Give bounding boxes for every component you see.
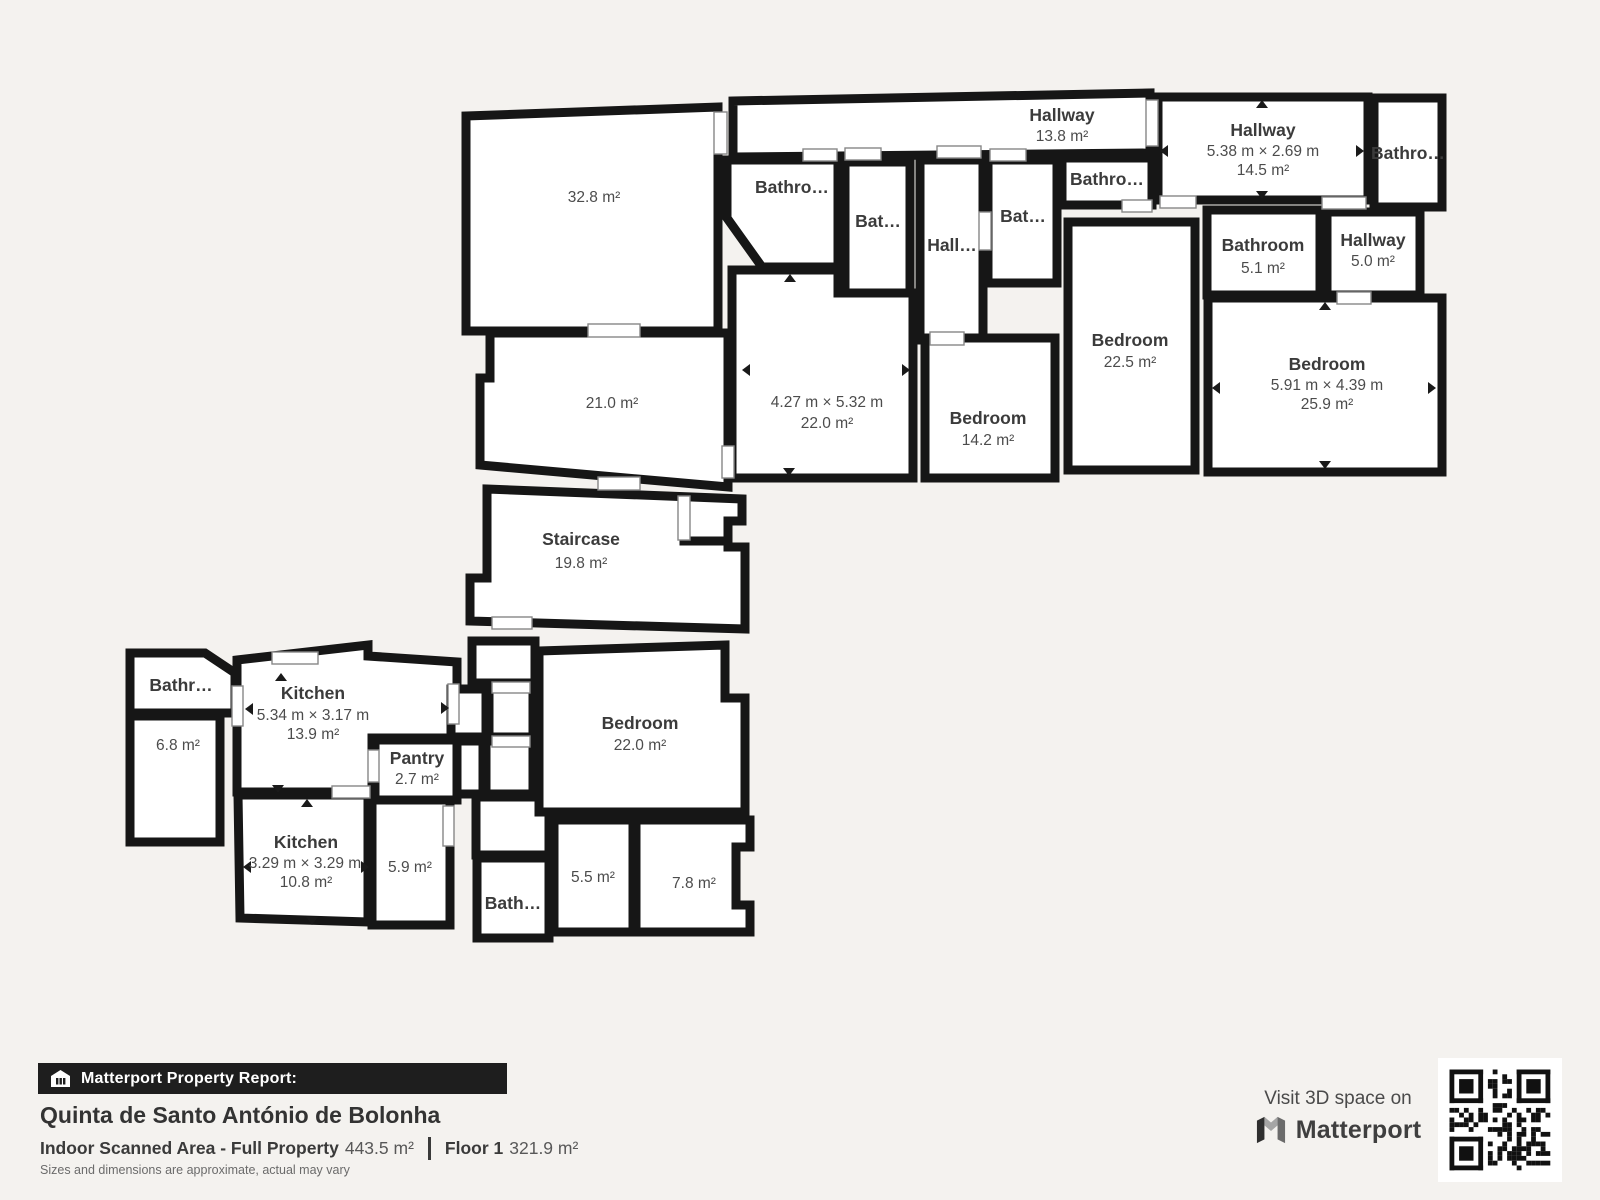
stats-divider bbox=[428, 1137, 431, 1160]
scanned-area-stat: Indoor Scanned Area - Full Property443.5… bbox=[40, 1138, 414, 1159]
room-label: Bathr… bbox=[149, 675, 212, 695]
door-opening bbox=[598, 477, 640, 490]
room-label: 14.5 m² bbox=[1237, 162, 1290, 179]
door-opening bbox=[1322, 197, 1366, 209]
room-label: 5.5 m² bbox=[571, 869, 615, 886]
room-label: Bathro… bbox=[1371, 143, 1445, 163]
room-label: 13.8 m² bbox=[1036, 128, 1089, 145]
room-label: 21.0 m² bbox=[586, 395, 639, 412]
room-label: Bat… bbox=[855, 211, 901, 231]
room-label: 22.5 m² bbox=[1104, 354, 1157, 371]
corridor-cell bbox=[489, 689, 533, 737]
room-label: 3.29 m × 3.29 m bbox=[249, 855, 361, 872]
room-label: Bathroom bbox=[1222, 235, 1305, 255]
room-label: Bat… bbox=[1000, 206, 1046, 226]
door-opening bbox=[803, 149, 837, 161]
door-opening bbox=[492, 736, 530, 747]
room-label: Hallway bbox=[1029, 105, 1094, 125]
door-opening bbox=[1146, 100, 1158, 146]
room-label: Hallway bbox=[1230, 120, 1295, 140]
room-label: Bedroom bbox=[1289, 354, 1366, 374]
room-label: 22.0 m² bbox=[614, 737, 667, 754]
room-label: 5.38 m × 2.69 m bbox=[1207, 143, 1319, 160]
room-label: 5.1 m² bbox=[1241, 260, 1285, 277]
door-opening bbox=[588, 324, 640, 337]
door-opening bbox=[1122, 200, 1152, 212]
matterport-logo-icon bbox=[1255, 1115, 1287, 1145]
room-label: Bedroom bbox=[1092, 330, 1169, 350]
door-opening bbox=[1160, 196, 1196, 208]
room-label: 25.9 m² bbox=[1301, 396, 1354, 413]
matterport-wordmark: Matterport bbox=[1296, 1116, 1422, 1145]
scanned-area-label: Indoor Scanned Area - Full Property bbox=[40, 1138, 339, 1158]
room-label: 5.9 m² bbox=[388, 859, 432, 876]
door-opening bbox=[332, 786, 370, 798]
room-label: 5.34 m × 3.17 m bbox=[257, 707, 369, 724]
door-opening bbox=[930, 332, 964, 345]
room-label: 32.8 m² bbox=[568, 189, 621, 206]
scanned-area-value: 443.5 m² bbox=[345, 1138, 414, 1158]
room-label: 19.8 m² bbox=[555, 555, 608, 572]
room-label: 7.8 m² bbox=[672, 875, 716, 892]
floor-label: Floor 1 bbox=[445, 1138, 503, 1158]
door-opening bbox=[232, 686, 243, 726]
floor-stat: Floor 1321.9 m² bbox=[445, 1138, 578, 1159]
visit-label: Visit 3D space on bbox=[1248, 1088, 1428, 1110]
report-bar: Matterport Property Report: bbox=[38, 1063, 507, 1094]
door-opening bbox=[1337, 292, 1371, 304]
room-label: Bathro… bbox=[755, 177, 829, 197]
room-label: 13.9 m² bbox=[287, 726, 340, 743]
visit-3d-block: Visit 3D space on Matterport bbox=[1248, 1088, 1428, 1145]
room-label: 10.8 m² bbox=[280, 874, 333, 891]
corridor-cell bbox=[472, 641, 535, 683]
door-opening bbox=[722, 446, 734, 478]
door-opening bbox=[845, 148, 881, 160]
floor-plan: 32.8 m² 21.0 m² Staircase 19.8 m² Hallwa… bbox=[0, 0, 1600, 1000]
door-opening bbox=[678, 496, 690, 540]
corridor-cell bbox=[486, 741, 533, 794]
room-label: 5.91 m × 4.39 m bbox=[1271, 377, 1383, 394]
room-label: Bath… bbox=[485, 893, 541, 913]
room-label: Staircase bbox=[542, 529, 620, 549]
room-label: Bedroom bbox=[602, 713, 679, 733]
door-opening bbox=[492, 617, 532, 629]
qr-code bbox=[1438, 1058, 1562, 1182]
door-opening bbox=[937, 146, 981, 158]
door-opening bbox=[368, 750, 379, 782]
room-22-0 bbox=[732, 270, 913, 478]
room-label: Kitchen bbox=[281, 683, 345, 703]
door-opening bbox=[492, 682, 530, 693]
disclaimer: Sizes and dimensions are approximate, ac… bbox=[40, 1163, 350, 1177]
floor-area-value: 321.9 m² bbox=[509, 1138, 578, 1158]
area-stats: Indoor Scanned Area - Full Property443.5… bbox=[40, 1137, 578, 1160]
room-label: 2.7 m² bbox=[395, 771, 439, 788]
room-label: Bathro… bbox=[1070, 169, 1144, 189]
door-opening bbox=[714, 112, 727, 154]
room-label: 6.8 m² bbox=[156, 737, 200, 754]
door-opening bbox=[990, 149, 1026, 161]
door-opening bbox=[448, 684, 459, 724]
room-6-8 bbox=[130, 716, 220, 842]
door-opening bbox=[443, 806, 454, 846]
report-bar-label: Matterport Property Report: bbox=[81, 1070, 297, 1088]
room-label: Hall… bbox=[927, 235, 977, 255]
matterport-floorplan-report: 32.8 m² 21.0 m² Staircase 19.8 m² Hallwa… bbox=[0, 0, 1600, 1200]
room-staircase bbox=[470, 489, 745, 629]
room-label: Kitchen bbox=[274, 832, 338, 852]
door-opening bbox=[272, 652, 318, 664]
room-label: Bedroom bbox=[950, 408, 1027, 428]
door-opening bbox=[979, 212, 991, 250]
room-label: 5.0 m² bbox=[1351, 253, 1395, 270]
room-label: 22.0 m² bbox=[801, 415, 854, 432]
corridor-cell bbox=[457, 741, 483, 794]
room-label: Pantry bbox=[390, 748, 445, 768]
room-label: Hallway bbox=[1340, 230, 1405, 250]
property-title: Quinta de Santo António de Bolonha bbox=[40, 1102, 440, 1129]
home-icon bbox=[51, 1070, 70, 1087]
room-label: 4.27 m × 5.32 m bbox=[771, 394, 883, 411]
room-32-8 bbox=[466, 107, 718, 331]
room-label: 14.2 m² bbox=[962, 432, 1015, 449]
